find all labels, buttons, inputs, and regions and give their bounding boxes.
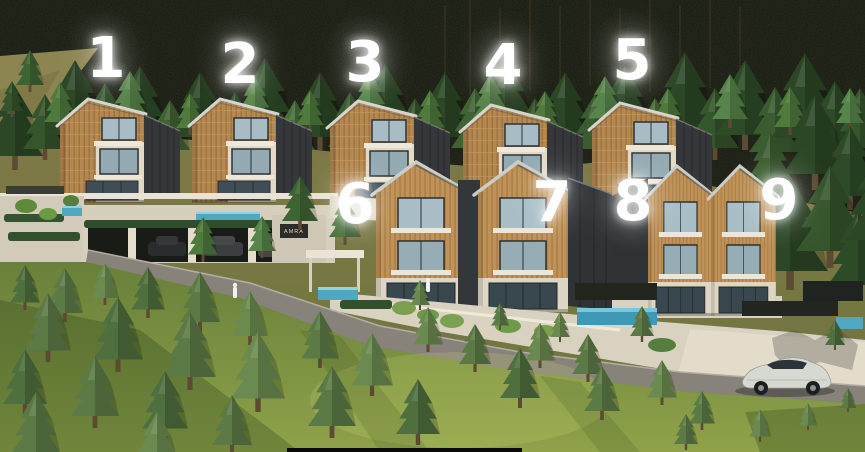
scene-canvas: AMRA <box>0 0 865 452</box>
villa-label-6: 6 <box>336 177 375 233</box>
fence-dark-1 <box>575 283 657 300</box>
villa-label-4: 4 <box>484 38 523 94</box>
villa-development-render: AMRA <box>0 0 865 452</box>
villa-label-9: 9 <box>760 173 799 229</box>
villa-label-1: 1 <box>87 31 126 87</box>
villa-label-3: 3 <box>346 35 385 91</box>
villa-label-7: 7 <box>533 175 572 231</box>
pergola-roof <box>6 186 64 194</box>
fence-dark-2 <box>803 281 863 301</box>
villa-label-8: 8 <box>614 174 653 230</box>
pool-villa-9 <box>836 317 863 329</box>
villa-label-5: 5 <box>613 33 652 89</box>
bottom-bar <box>287 448 522 452</box>
dark-panel-6-7 <box>458 180 480 308</box>
villa-label-2: 2 <box>221 37 260 93</box>
fence-dark-3 <box>742 301 838 316</box>
